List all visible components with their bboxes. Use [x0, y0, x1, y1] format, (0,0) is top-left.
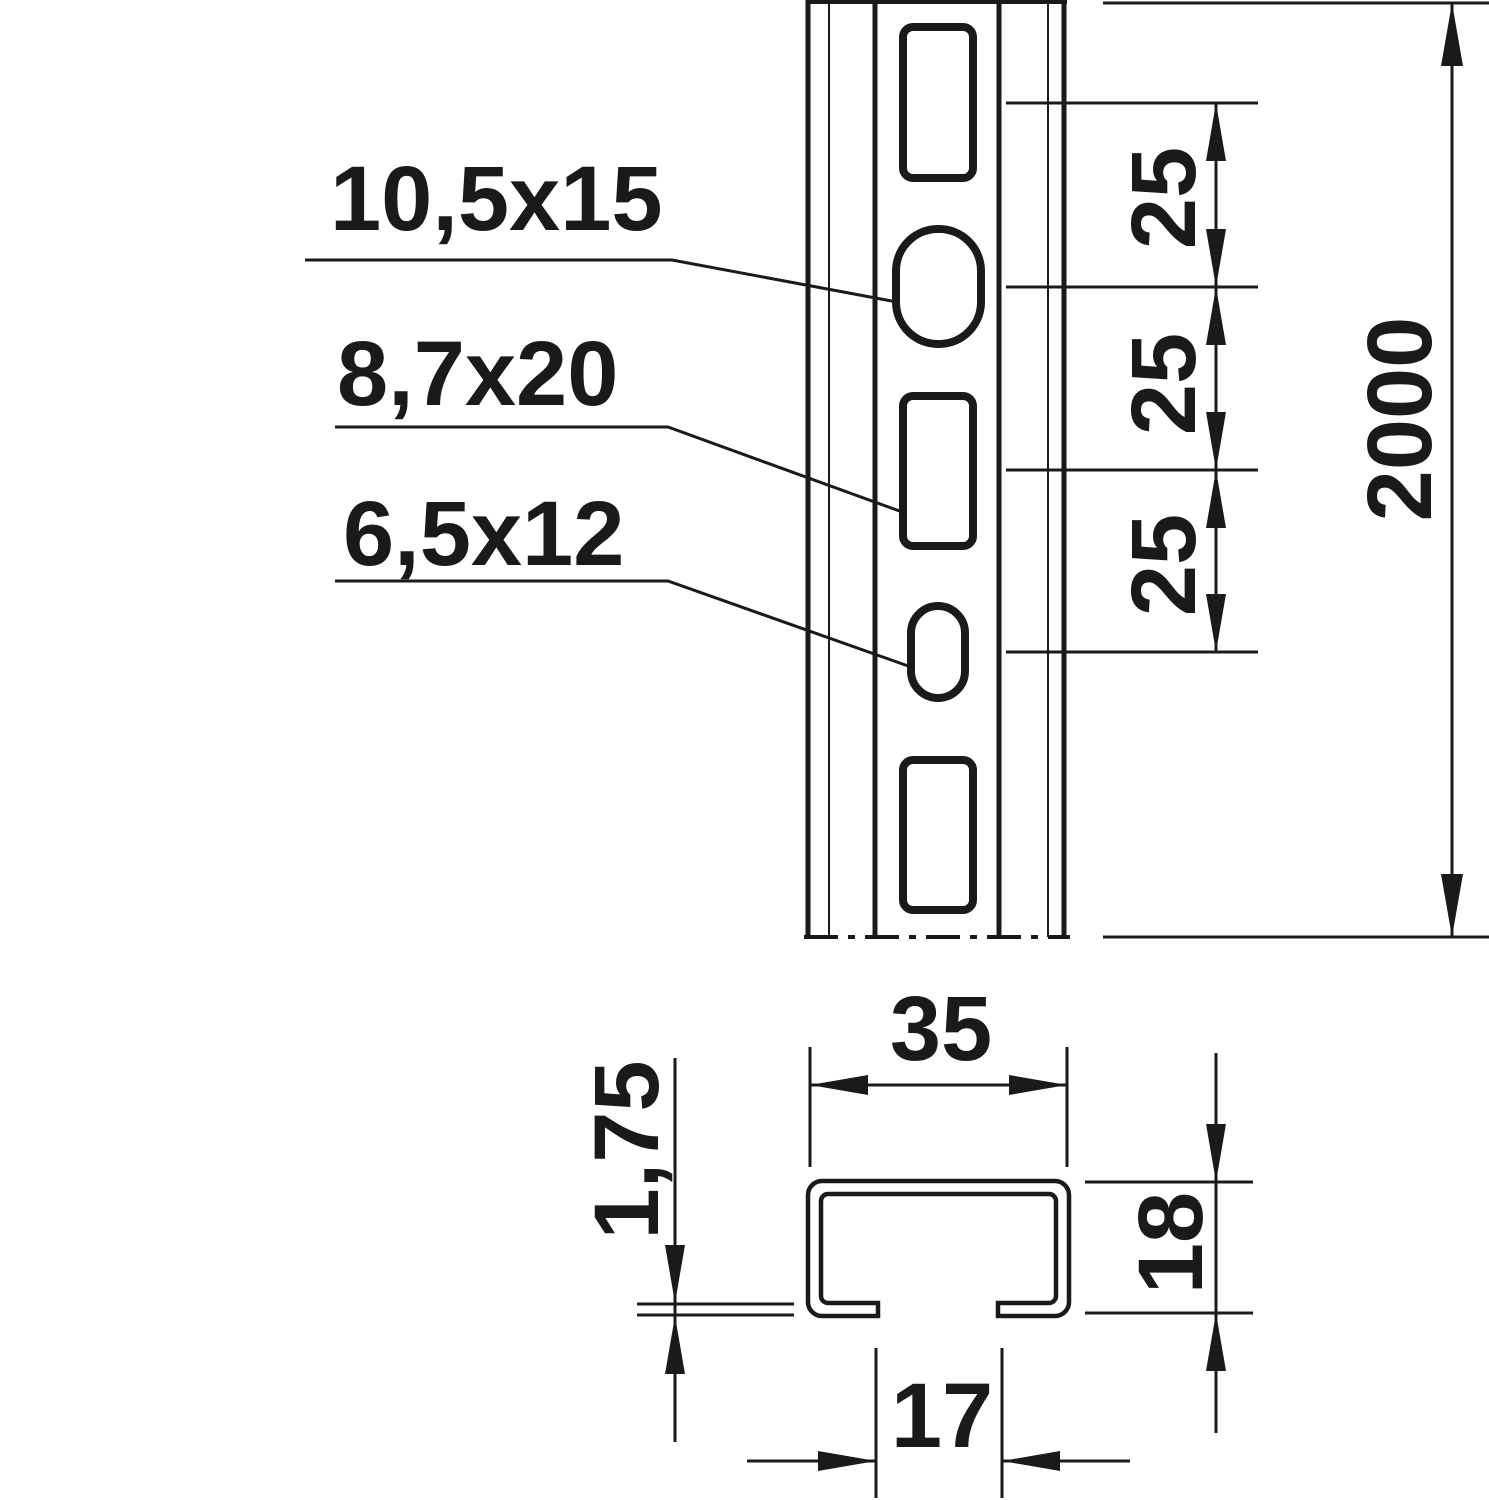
pitch-dim-text-3: 25 — [1113, 514, 1215, 616]
leader-line-6_5x12 — [335, 581, 911, 667]
opening-dimension-17: 17 — [747, 1348, 1130, 1498]
thickness-dimension-1_75: 1,75 — [576, 1058, 794, 1442]
slot-hole-8_7x20-top — [903, 27, 973, 178]
arrowhead-height-top — [1206, 1124, 1226, 1182]
height-dimension-18: 18 — [1085, 1053, 1253, 1433]
arrowhead-height-bottom — [1206, 1313, 1226, 1371]
arrowhead-opening-left — [818, 1451, 876, 1471]
hole-label-6_5x12: 6,5x12 — [343, 483, 624, 585]
width-dimension-35: 35 — [810, 978, 1067, 1167]
slot-hole-8_7x20-bottom — [903, 760, 973, 910]
arrowhead-length-bottom — [1441, 874, 1463, 937]
width-dim-text: 35 — [890, 978, 992, 1080]
arrowhead-length-top — [1441, 3, 1463, 66]
arrowhead-thickness-top — [665, 1245, 685, 1303]
pitch-dim-text-1: 25 — [1113, 147, 1215, 249]
oval-hole-10_5x15 — [896, 229, 981, 344]
hole-label-8_7x20: 8,7x20 — [337, 323, 618, 425]
c-profile-contour — [808, 1181, 1069, 1316]
arrowhead-opening-right — [1002, 1451, 1060, 1471]
arrowhead-width-right — [1009, 1075, 1067, 1095]
slot-hole-8_7x20-middle — [903, 396, 973, 546]
thickness-dim-text: 1,75 — [576, 1060, 678, 1239]
arrowhead-width-left — [810, 1075, 868, 1095]
hole-label-10_5x15: 10,5x15 — [330, 148, 663, 250]
rail-dimension-drawing: 10,5x15 8,7x20 6,5x12 25 25 25 — [0, 0, 1489, 1500]
cross-section-view — [808, 1181, 1069, 1316]
pitch-dim-text-2: 25 — [1113, 333, 1215, 435]
length-dim-text: 2000 — [1349, 317, 1451, 522]
height-dim-text: 18 — [1120, 1192, 1222, 1294]
oval-hole-6_5x12 — [911, 606, 965, 698]
pitch-dimension-25: 25 25 25 — [1006, 103, 1258, 652]
technical-drawing-page: 10,5x15 8,7x20 6,5x12 25 25 25 — [0, 0, 1489, 1500]
arrowhead-thickness-bottom — [665, 1316, 685, 1374]
hole-callouts: 10,5x15 8,7x20 6,5x12 — [305, 148, 911, 667]
opening-dim-text: 17 — [891, 1365, 993, 1467]
